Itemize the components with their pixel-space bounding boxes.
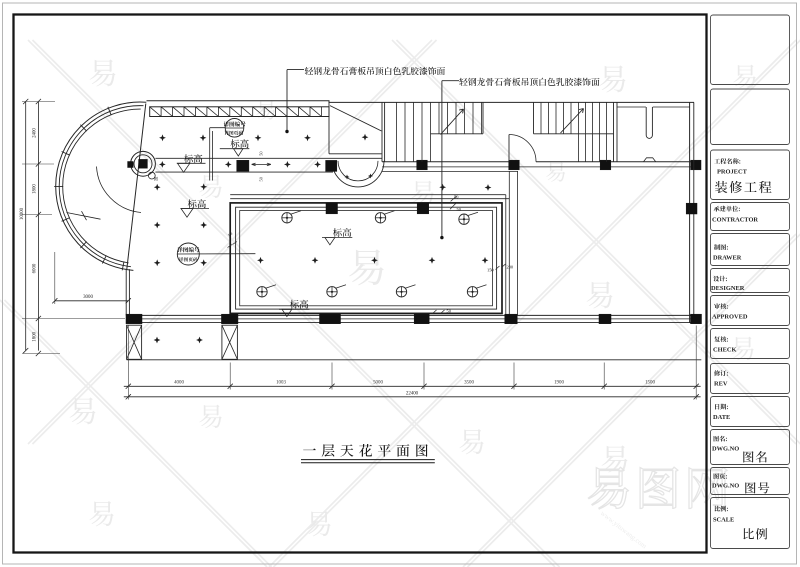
svg-text:CONTRACTOR: CONTRACTOR	[712, 217, 758, 224]
svg-text:APPROVED: APPROVED	[712, 314, 748, 321]
svg-text:CHECK: CHECK	[713, 347, 736, 354]
svg-text:5000: 5000	[373, 380, 383, 385]
svg-text:DRAWER: DRAWER	[713, 255, 742, 262]
svg-text:6000: 6000	[32, 263, 37, 273]
svg-text:1003: 1003	[276, 380, 286, 385]
svg-text:10000: 10000	[20, 207, 25, 220]
svg-text:3000: 3000	[83, 295, 93, 300]
svg-text:1500: 1500	[645, 380, 655, 385]
svg-text:22400: 22400	[406, 391, 419, 396]
svg-text:SCALE: SCALE	[713, 517, 734, 524]
svg-text:PROJECT: PROJECT	[717, 169, 748, 176]
svg-text:DWG.NO: DWG.NO	[712, 483, 739, 490]
svg-text:3500: 3500	[464, 380, 474, 385]
svg-text:1800: 1800	[32, 331, 37, 341]
svg-text:200: 200	[507, 265, 514, 270]
svg-text:REV: REV	[714, 381, 728, 388]
svg-text:150: 150	[487, 268, 494, 273]
svg-text:DESIGNER: DESIGNER	[711, 285, 745, 292]
svg-text:1900: 1900	[554, 380, 564, 385]
svg-text:2400: 2400	[32, 128, 37, 138]
svg-text:4000: 4000	[174, 380, 184, 385]
svg-text:DWG.NO: DWG.NO	[712, 446, 739, 453]
svg-text:1800: 1800	[32, 184, 37, 194]
svg-text:DATE: DATE	[713, 414, 730, 421]
